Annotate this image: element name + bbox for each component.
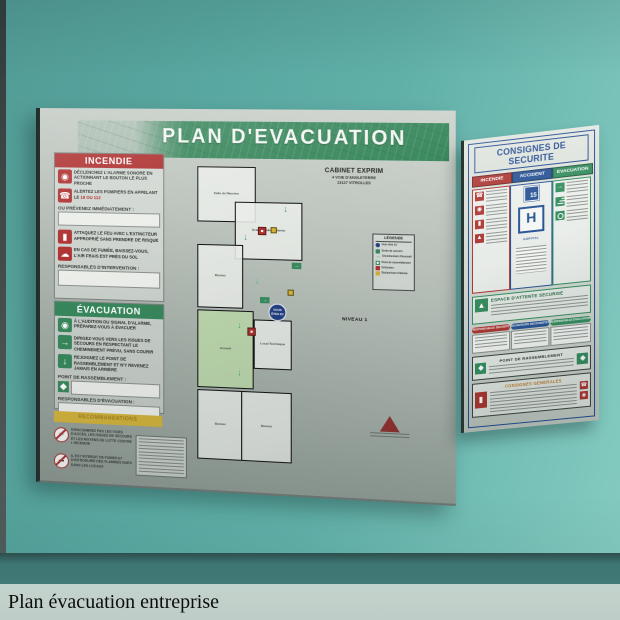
legend-label: Vous êtes ici bbox=[382, 245, 397, 247]
exit-marker-icon: → bbox=[260, 297, 269, 303]
exit-marker-icon: → bbox=[292, 263, 302, 269]
fine-print-lines bbox=[486, 231, 507, 244]
you-are-here-icon bbox=[376, 243, 380, 247]
legend-row: Sortie de secours bbox=[376, 249, 412, 254]
extinguisher-icon: ▮ bbox=[475, 219, 484, 229]
triangle-logo-icon bbox=[380, 416, 400, 433]
consignes-securite-sign: CONSIGNES DE SECURITE INCENDIE ACCIDENT … bbox=[461, 125, 599, 433]
legend-row: Déclencheur d'alarme bbox=[376, 272, 412, 277]
small-icons-column: ☎ ◉ bbox=[580, 376, 588, 405]
incendie-item: ◉ Déclenchez l'alarme sonore en actionna… bbox=[55, 167, 163, 188]
assembly-point-icon bbox=[577, 352, 588, 364]
hospital-label: HOPITAL bbox=[523, 236, 539, 242]
logo-fine-print bbox=[370, 432, 409, 440]
sauveteurs-block: SAUVETEURS SECOURISTES bbox=[511, 320, 550, 350]
maker-logo bbox=[370, 415, 409, 440]
notify-writein-box bbox=[58, 212, 160, 228]
alarm-marker-icon bbox=[288, 290, 294, 296]
level-label: NIVEAU 1 bbox=[342, 316, 385, 323]
no-smoking-icon: ▬ bbox=[54, 453, 69, 469]
assembly-point-icon bbox=[475, 362, 486, 374]
evacuation-arrow-icon: ↓ bbox=[243, 233, 248, 242]
incendie-column: ☎ ◉ ▮ ▲ bbox=[472, 185, 510, 293]
incendie-header: INCENDIE bbox=[55, 153, 163, 169]
consigne-row: ▲ bbox=[475, 231, 507, 246]
warning-row: ▬ Il est interdit de fumer et d'introdui… bbox=[54, 453, 133, 472]
extinguisher-marker-icon bbox=[258, 227, 266, 235]
exit-icon bbox=[376, 249, 380, 253]
room-label: Bureau bbox=[261, 425, 272, 429]
fine-print-lines bbox=[567, 208, 588, 221]
fine-print-lines bbox=[516, 245, 546, 274]
consigne-row bbox=[555, 208, 587, 223]
legend-row: Vous êtes ici bbox=[376, 243, 412, 248]
smoke-crawl-icon: ☁ bbox=[58, 247, 72, 261]
incendie-item: ☎ Alertez les pompiers en appelant le 18… bbox=[55, 187, 163, 206]
hospital-sign-icon: H bbox=[518, 205, 544, 234]
writein-box bbox=[550, 323, 591, 346]
assembly-point-icon bbox=[58, 381, 69, 393]
room-label: Salle de Réunion bbox=[214, 192, 239, 196]
alarm-trigger-icon bbox=[376, 272, 380, 276]
room-bureau-3: Bureau bbox=[241, 391, 292, 464]
document-info-box bbox=[136, 435, 187, 478]
wall-corner-edge bbox=[0, 0, 6, 584]
consignes-frame: CONSIGNES DE SECURITE INCENDIE ACCIDENT … bbox=[468, 129, 595, 428]
consignes-generales-mid: CONSIGNES GENERALES bbox=[490, 377, 577, 414]
intervention-writein-box bbox=[58, 270, 160, 289]
no-blocking-icon: ▭ bbox=[54, 427, 69, 443]
evacuation-arrow-icon: ↓ bbox=[237, 321, 242, 330]
plan-title: PLAN D'EVACUATION bbox=[163, 125, 407, 151]
evacuation-section: ÉVACUATION ◉ À l'audition du signal d'al… bbox=[54, 301, 164, 414]
room-label: Accueil bbox=[220, 347, 231, 351]
warning-text: N'encombrez pas les voies d'accès, les i… bbox=[71, 428, 133, 449]
caption-text: Plan évacuation entreprise bbox=[0, 591, 219, 614]
company-block: CABINET EXPRIM 4 VOIE D'ANGLETERRE 13127… bbox=[321, 168, 388, 186]
responsables-securite-block: RESPONSABLES SECURITE bbox=[472, 324, 510, 354]
alarm-button-icon: ◉ bbox=[58, 169, 72, 183]
evacuation-item-text: À l'audition du signal d'alarme, prépare… bbox=[74, 318, 160, 332]
fine-print-lines bbox=[475, 334, 507, 350]
room-label: Local Technique bbox=[260, 343, 285, 348]
legend-label: Cheminement d'évacuation bbox=[382, 256, 412, 259]
extinguisher-icon bbox=[376, 266, 380, 270]
evacuation-arrow-icon: ↓ bbox=[255, 276, 260, 285]
emergency-numbers: 18 ou 112 bbox=[80, 195, 100, 200]
fine-print-lines bbox=[567, 180, 588, 193]
fine-print-lines bbox=[514, 330, 547, 346]
legend-title: LÉGENDE bbox=[376, 236, 412, 243]
fine-print-lines bbox=[486, 217, 507, 230]
you-are-here-marker: VOUS ÊTES ICI bbox=[268, 303, 286, 321]
warning-row: ▭ N'encombrez pas les voies d'accès, les… bbox=[54, 427, 133, 449]
room-label: Grande Salle d'attente bbox=[252, 229, 285, 233]
accident-column: 15 H HOPITAL bbox=[510, 181, 552, 290]
incendie-item-text: Déclenchez l'alarme sonore en actionnant… bbox=[74, 170, 160, 188]
legend-row: →Cheminement d'évacuation bbox=[376, 255, 412, 260]
phone-icon: ☎ bbox=[580, 381, 588, 390]
legend-label: Sortie de secours bbox=[382, 250, 403, 253]
assembly-walk-icon: ↓ bbox=[58, 354, 72, 369]
writein-box bbox=[511, 327, 550, 350]
exit-route-icon: → bbox=[58, 335, 72, 350]
caption-bar: Plan évacuation entreprise bbox=[0, 584, 620, 620]
consignes-columns: ☎ ◉ ▮ ▲ 15 H HOPITAL → bbox=[472, 176, 591, 294]
consigne-row: ☎ bbox=[475, 189, 507, 204]
extinguisher-icon: ▮ bbox=[58, 230, 72, 244]
consigne-row: ▮ bbox=[475, 217, 507, 232]
samu-15-icon: 15 bbox=[524, 185, 539, 202]
evacuation-arrow-icon: ↓ bbox=[283, 205, 288, 214]
legend-label: Point de rassemblement bbox=[382, 262, 411, 265]
company-name: CABINET EXPRIM bbox=[321, 168, 388, 175]
extinguisher-marker-icon bbox=[247, 327, 255, 336]
alarm-signal-icon: ◉ bbox=[58, 318, 72, 333]
incendie-item-text: Alertez les pompiers en appelant le 18 o… bbox=[74, 189, 160, 202]
fine-print-lines bbox=[553, 326, 588, 343]
incendie-item-text: En cas de fumée, baissez-vous, l'air fra… bbox=[74, 247, 160, 260]
fine-print-lines bbox=[567, 194, 588, 207]
floor-shadow-band bbox=[0, 553, 620, 584]
phone-icon: ☎ bbox=[58, 189, 72, 203]
photo-of-wall: PLAN D'EVACUATION INCENDIE ◉ Déclenchez … bbox=[0, 0, 620, 620]
fine-print-lines bbox=[139, 438, 184, 475]
warning-text: Il est interdit de fumer et d'introduire… bbox=[71, 454, 133, 471]
alarm-marker-icon bbox=[271, 227, 277, 233]
evacuation-plan-sign: PLAN D'EVACUATION INCENDIE ◉ Déclenchez … bbox=[36, 108, 456, 506]
alarm-icon: ◉ bbox=[580, 391, 588, 400]
consigne-row: ◉ bbox=[475, 203, 507, 218]
samu-number: 15 bbox=[530, 193, 537, 200]
evacuation-arrow-icon: ↓ bbox=[237, 368, 242, 377]
responsables-evacuation-block: RESPONSABLES EVACUATION bbox=[550, 316, 591, 346]
wheelchair-icon bbox=[555, 211, 564, 221]
room-technique: Local Technique bbox=[254, 319, 292, 370]
legend-row: Point de rassemblement bbox=[376, 260, 412, 265]
room-label: Bureau bbox=[215, 423, 226, 427]
rassemblement-mid: POINT DE RASSEMBLEMENT bbox=[489, 351, 574, 375]
writein-box bbox=[472, 331, 510, 354]
evacuation-item-text: Dirigez-vous vers les issues de secours … bbox=[74, 335, 160, 355]
stairs-icon bbox=[555, 196, 564, 206]
evacuate-icon: ▲ bbox=[475, 233, 484, 243]
legend-label: Extincteur bbox=[382, 267, 394, 269]
room-bureau-2: Bureau bbox=[197, 389, 243, 461]
extinguisher-icon: ▮ bbox=[475, 391, 487, 408]
consigne-row bbox=[555, 194, 587, 209]
incendie-item-text: Attaquez le feu avec l'extincteur approp… bbox=[74, 230, 160, 243]
floor-plan: Salle de Réunion Grande Salle d'attente … bbox=[195, 166, 304, 464]
company-address-2: 13127 VITROLLES bbox=[321, 180, 388, 185]
consigne-row: → bbox=[555, 180, 587, 195]
refuge-area-icon: ▲ bbox=[475, 298, 488, 312]
legend-row: Extincteur bbox=[376, 266, 412, 271]
room-bureau-1: Bureau bbox=[197, 244, 243, 309]
espace-attente-text: ESPACE D'ATTENTE SECURISE bbox=[491, 288, 588, 320]
phone-icon: ☎ bbox=[475, 191, 484, 201]
legend-box: LÉGENDE Vous êtes ici Sortie de secours … bbox=[372, 233, 415, 291]
legend-label: Déclencheur d'alarme bbox=[382, 273, 408, 276]
evacuation-column: → bbox=[552, 176, 591, 285]
exit-run-icon: → bbox=[555, 182, 564, 192]
room-label: Bureau bbox=[215, 274, 226, 278]
assembly-point-icon bbox=[376, 260, 380, 264]
route-arrow-icon: → bbox=[376, 255, 381, 259]
alarm-button-icon: ◉ bbox=[475, 205, 484, 215]
fine-print-lines bbox=[486, 189, 507, 202]
room-accueil: Accueil bbox=[197, 309, 253, 389]
fine-print-lines bbox=[486, 203, 507, 216]
incendie-section: INCENDIE ◉ Déclenchez l'alarme sonore en… bbox=[54, 152, 164, 302]
